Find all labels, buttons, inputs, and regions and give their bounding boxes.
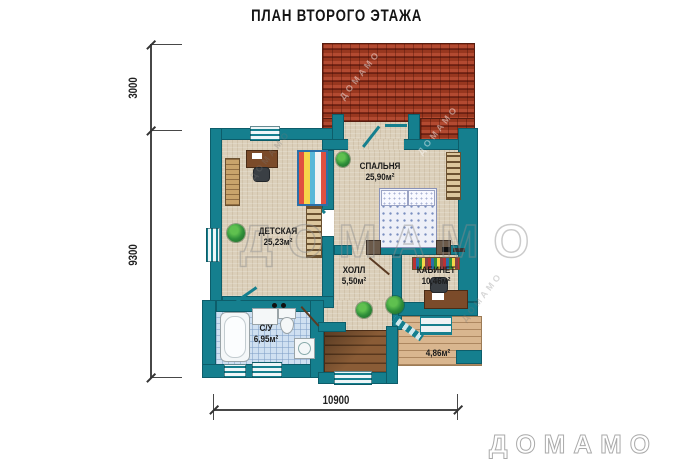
dim-label-3000: 3000	[126, 75, 140, 102]
dim-label-9300: 9300	[126, 242, 140, 269]
bedroom-pillow-right	[408, 190, 435, 206]
room-label-office: КАБИНЕТ 10,46м²	[398, 266, 474, 287]
room-label-bedroom: СПАЛЬНЯ 25,90м²	[340, 162, 420, 183]
floor-plan-page: ПЛАН ВТОРОГО ЭТАЖА 3000 9300 10900	[0, 0, 674, 470]
office-desk-paper	[432, 293, 444, 300]
room-label-hall: ХОЛЛ 5,50м²	[326, 266, 382, 287]
kids-wardrobe	[225, 158, 240, 206]
wall-stairs-right	[386, 326, 398, 384]
room-label-kids: ДЕТСКАЯ 25,23м²	[240, 227, 316, 248]
office-area: 10,46м²	[404, 277, 469, 288]
bathroom-window-mid	[252, 362, 282, 378]
page-title: ПЛАН ВТОРОГО ЭТАЖА	[0, 6, 674, 26]
media-shelf-icon	[453, 248, 465, 252]
bedroom-ladder-shelf	[446, 152, 461, 200]
wall-left	[210, 128, 222, 310]
faucet-dot	[272, 303, 277, 308]
office-dresser	[420, 316, 452, 335]
dim-left-line	[150, 45, 152, 378]
dim-left-ext-bot	[150, 377, 182, 378]
kids-chair	[253, 167, 270, 182]
room-label-bathroom: С/У 6,95м²	[236, 324, 296, 345]
office-desk	[424, 290, 468, 309]
dim-bottom-line	[213, 409, 458, 411]
washer-drum	[298, 342, 311, 355]
room-label-balcony: 4,86м²	[408, 349, 468, 360]
bedroom-balcony-door-opening	[348, 139, 404, 150]
hall-area: 5,50м²	[330, 277, 378, 288]
roof	[322, 43, 475, 122]
kids-bed	[297, 150, 328, 206]
tv-icon	[442, 247, 450, 252]
dim-label-10900: 10900	[319, 393, 352, 407]
hall-plant-icon	[356, 302, 372, 318]
stairs-window	[334, 371, 372, 385]
bedroom-nightstand-left	[366, 240, 381, 255]
kids-desk	[246, 150, 278, 168]
wall-stairs-topleft	[318, 322, 346, 332]
bedroom-pillow-left	[381, 190, 408, 206]
faucet-dot-2	[281, 303, 286, 308]
dim-left-ext-top	[150, 44, 182, 45]
bathroom-area: 6,95м²	[241, 335, 292, 346]
wall-balcony-pillar-right	[408, 114, 420, 142]
balcony-door-open	[385, 124, 407, 127]
kids-area: 25,23м²	[246, 238, 311, 249]
bedroom-area: 25,90м²	[346, 173, 414, 184]
kids-top-window	[250, 126, 280, 141]
dim-left-ext-mid	[150, 130, 182, 131]
bathroom-window-left	[224, 364, 246, 378]
watermark-logo: ДОМАМО	[489, 429, 658, 460]
hall-plant-icon-2	[386, 296, 404, 314]
kids-desk-paper	[252, 153, 262, 159]
wall-balcony-pillar-left	[332, 114, 344, 142]
staircase	[324, 330, 388, 374]
left-wall-window	[206, 228, 220, 262]
balcony-area: 4,86м²	[413, 349, 464, 360]
